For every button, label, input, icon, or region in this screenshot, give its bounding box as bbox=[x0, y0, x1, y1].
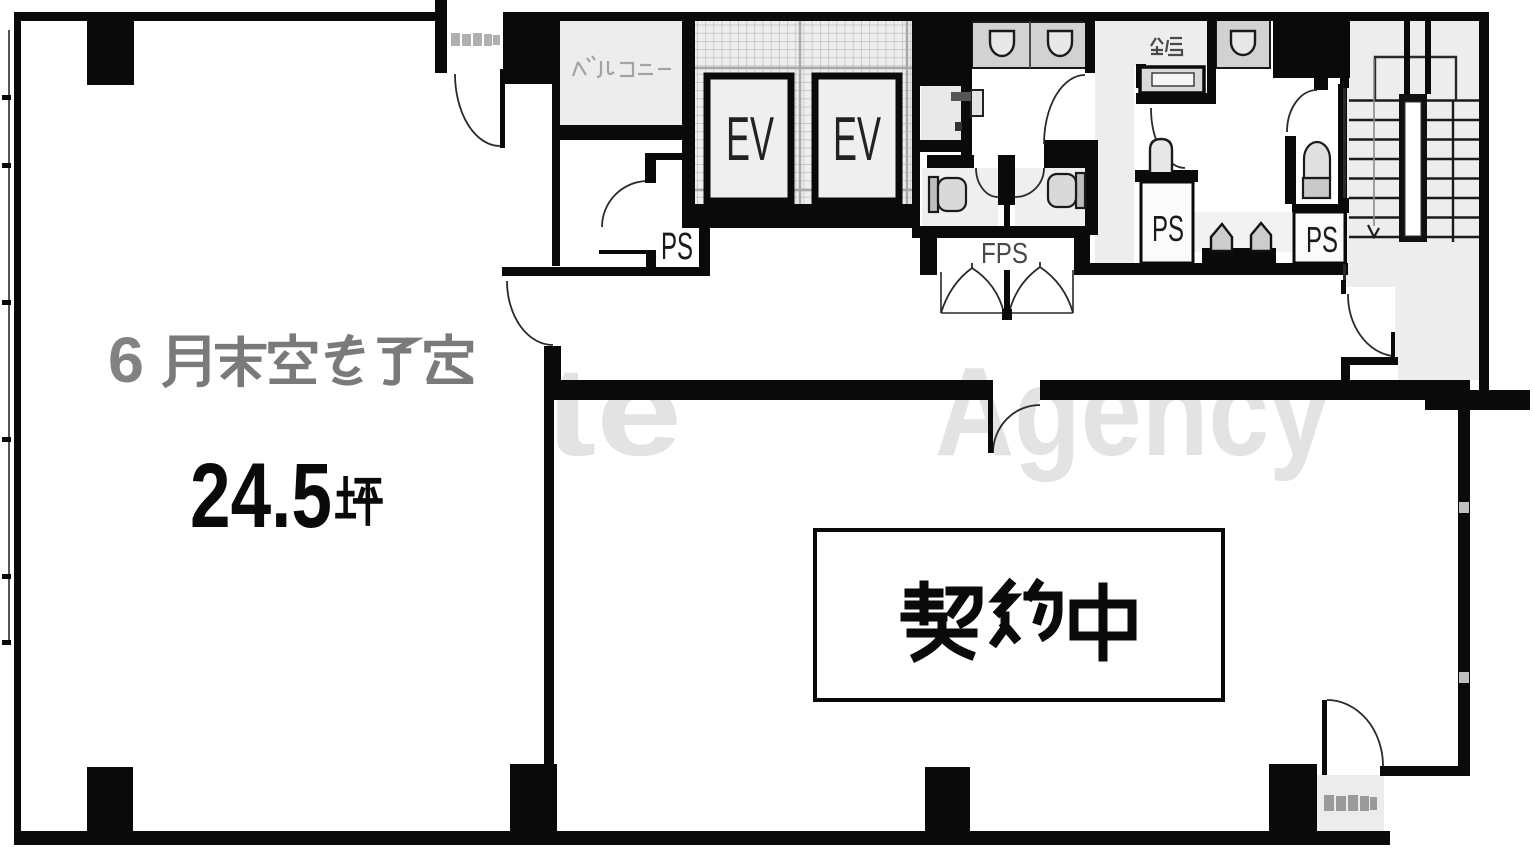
svg-text:te: te bbox=[545, 341, 682, 482]
svg-text:EV: EV bbox=[833, 105, 881, 174]
svg-text:24.5: 24.5 bbox=[190, 445, 332, 547]
svg-text:EV: EV bbox=[726, 105, 774, 174]
svg-text:PS: PS bbox=[1306, 219, 1338, 260]
svg-text:Agency: Agency bbox=[935, 341, 1330, 482]
svg-text:PS: PS bbox=[1152, 208, 1184, 249]
svg-text:FPS: FPS bbox=[981, 238, 1028, 270]
svg-text:PS: PS bbox=[661, 226, 693, 268]
svg-text:6: 6 bbox=[108, 324, 144, 396]
